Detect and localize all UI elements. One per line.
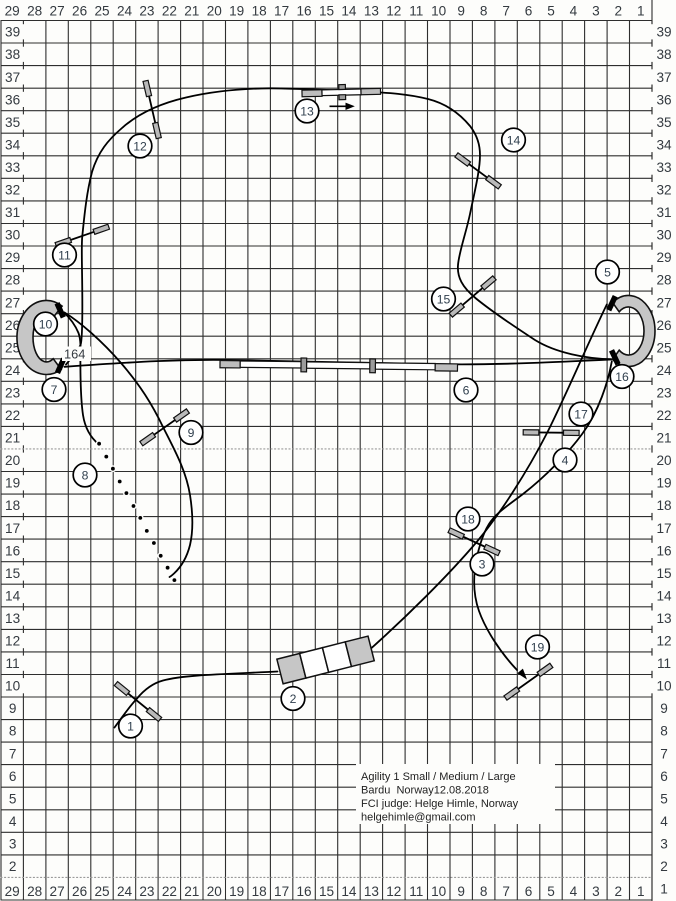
svg-text:34: 34 — [5, 137, 21, 152]
svg-text:13: 13 — [364, 4, 379, 19]
svg-text:FCI judge: Helge Himle, Norway: FCI judge: Helge Himle, Norway — [361, 798, 519, 810]
svg-text:27: 27 — [50, 4, 65, 19]
svg-text:10: 10 — [39, 317, 53, 331]
svg-text:22: 22 — [162, 4, 177, 19]
svg-text:18: 18 — [252, 884, 267, 899]
svg-text:5: 5 — [9, 791, 17, 806]
svg-text:33: 33 — [656, 160, 671, 175]
svg-text:33: 33 — [5, 160, 20, 175]
svg-text:4: 4 — [570, 884, 578, 899]
svg-text:10: 10 — [431, 884, 447, 899]
svg-text:23: 23 — [656, 386, 671, 401]
svg-text:10: 10 — [656, 679, 672, 694]
svg-text:17: 17 — [274, 884, 289, 899]
svg-text:28: 28 — [656, 273, 671, 288]
svg-text:6: 6 — [463, 383, 470, 397]
svg-text:12: 12 — [656, 634, 671, 649]
svg-text:6: 6 — [525, 4, 533, 19]
svg-text:25: 25 — [656, 340, 671, 355]
svg-text:11: 11 — [6, 656, 20, 671]
svg-text:13: 13 — [300, 104, 314, 118]
svg-text:25: 25 — [94, 4, 109, 19]
svg-text:20: 20 — [207, 884, 223, 899]
svg-text:16: 16 — [296, 4, 311, 19]
svg-text:34: 34 — [656, 137, 672, 152]
svg-text:19: 19 — [229, 4, 244, 19]
svg-text:9: 9 — [9, 701, 17, 716]
svg-text:30: 30 — [5, 228, 21, 243]
svg-text:18: 18 — [252, 4, 267, 19]
svg-text:8: 8 — [9, 724, 17, 739]
svg-text:5: 5 — [547, 884, 555, 899]
svg-text:10: 10 — [5, 679, 21, 694]
svg-text:16: 16 — [615, 370, 629, 384]
svg-text:17: 17 — [656, 521, 671, 536]
svg-text:26: 26 — [72, 884, 87, 899]
svg-text:15: 15 — [437, 292, 451, 306]
svg-text:19: 19 — [531, 640, 545, 654]
svg-text:1: 1 — [660, 882, 668, 897]
svg-text:27: 27 — [5, 295, 20, 310]
svg-text:13: 13 — [364, 884, 379, 899]
svg-text:3: 3 — [592, 884, 600, 899]
svg-text:1: 1 — [637, 884, 645, 899]
svg-text:24: 24 — [656, 363, 672, 378]
svg-text:14: 14 — [341, 4, 357, 19]
svg-text:8: 8 — [480, 884, 488, 899]
svg-text:31: 31 — [656, 205, 671, 220]
svg-text:11: 11 — [58, 248, 71, 262]
svg-text:17: 17 — [5, 521, 20, 536]
svg-text:38: 38 — [5, 47, 20, 62]
svg-text:29: 29 — [5, 4, 20, 19]
svg-text:31: 31 — [5, 205, 20, 220]
svg-text:23: 23 — [139, 884, 154, 899]
svg-text:39: 39 — [5, 25, 20, 40]
svg-text:32: 32 — [656, 183, 671, 198]
svg-text:28: 28 — [27, 4, 42, 19]
svg-text:12: 12 — [386, 4, 401, 19]
svg-text:14: 14 — [507, 133, 521, 147]
svg-text:2: 2 — [660, 859, 668, 874]
svg-text:4: 4 — [562, 453, 569, 467]
svg-text:14: 14 — [341, 884, 357, 899]
svg-text:14: 14 — [5, 588, 21, 603]
svg-text:29: 29 — [656, 250, 671, 265]
svg-text:29: 29 — [5, 250, 20, 265]
svg-text:12: 12 — [386, 884, 401, 899]
svg-text:9: 9 — [457, 4, 465, 19]
svg-text:15: 15 — [319, 884, 334, 899]
svg-text:7: 7 — [660, 746, 668, 761]
svg-text:11: 11 — [409, 4, 423, 19]
svg-text:27: 27 — [50, 884, 65, 899]
svg-text:6: 6 — [525, 884, 533, 899]
svg-text:32: 32 — [5, 183, 20, 198]
svg-text:29: 29 — [5, 884, 20, 899]
svg-text:28: 28 — [27, 884, 42, 899]
svg-text:3: 3 — [660, 837, 668, 852]
svg-text:36: 36 — [656, 92, 671, 107]
svg-text:2: 2 — [290, 692, 297, 706]
svg-text:7: 7 — [502, 4, 510, 19]
svg-text:164: 164 — [64, 346, 85, 361]
svg-text:26: 26 — [656, 318, 671, 333]
svg-text:3: 3 — [592, 4, 600, 19]
svg-text:16: 16 — [296, 884, 311, 899]
svg-text:19: 19 — [5, 476, 20, 491]
svg-text:7: 7 — [51, 383, 58, 397]
svg-text:25: 25 — [94, 884, 109, 899]
svg-text:39: 39 — [656, 25, 671, 40]
svg-text:30: 30 — [656, 228, 672, 243]
svg-text:9: 9 — [457, 884, 465, 899]
svg-text:20: 20 — [5, 453, 21, 468]
svg-text:18: 18 — [461, 512, 475, 526]
svg-text:26: 26 — [72, 4, 87, 19]
svg-text:15: 15 — [319, 4, 334, 19]
svg-text:19: 19 — [656, 476, 671, 491]
svg-text:2: 2 — [615, 884, 623, 899]
svg-text:21: 21 — [184, 884, 199, 899]
svg-text:36: 36 — [5, 92, 20, 107]
svg-text:4: 4 — [9, 814, 17, 829]
svg-text:4: 4 — [660, 814, 668, 829]
svg-text:8: 8 — [480, 4, 488, 19]
svg-text:16: 16 — [656, 543, 671, 558]
svg-text:helgehimle@gmail.com: helgehimle@gmail.com — [361, 812, 476, 824]
svg-text:12: 12 — [133, 139, 147, 153]
svg-text:2: 2 — [9, 859, 17, 874]
svg-text:Bardu Norway12.08.2018: Bardu Norway12.08.2018 — [361, 785, 489, 797]
svg-text:1: 1 — [127, 719, 134, 733]
svg-text:19: 19 — [229, 884, 244, 899]
svg-text:9: 9 — [660, 701, 668, 716]
svg-text:18: 18 — [656, 498, 671, 513]
svg-text:21: 21 — [656, 431, 671, 446]
svg-text:35: 35 — [5, 115, 20, 130]
svg-text:22: 22 — [656, 408, 671, 423]
svg-text:7: 7 — [9, 746, 17, 761]
svg-text:22: 22 — [5, 408, 20, 423]
svg-text:3: 3 — [479, 557, 486, 571]
svg-text:22: 22 — [162, 884, 177, 899]
svg-text:35: 35 — [656, 115, 671, 130]
svg-text:16: 16 — [5, 543, 20, 558]
svg-text:37: 37 — [5, 70, 20, 85]
svg-text:24: 24 — [5, 363, 21, 378]
svg-text:17: 17 — [574, 407, 588, 421]
svg-text:24: 24 — [117, 4, 133, 19]
svg-text:28: 28 — [5, 273, 20, 288]
svg-text:13: 13 — [656, 611, 671, 626]
svg-text:21: 21 — [184, 4, 199, 19]
svg-text:10: 10 — [431, 4, 447, 19]
svg-text:4: 4 — [570, 4, 578, 19]
svg-text:6: 6 — [660, 769, 668, 784]
svg-text:8: 8 — [82, 468, 89, 482]
svg-text:27: 27 — [656, 295, 671, 310]
svg-text:37: 37 — [656, 70, 671, 85]
svg-text:13: 13 — [5, 611, 20, 626]
svg-text:17: 17 — [274, 4, 289, 19]
svg-text:8: 8 — [660, 724, 668, 739]
svg-text:15: 15 — [656, 566, 671, 581]
svg-text:2: 2 — [615, 4, 623, 19]
svg-text:23: 23 — [139, 4, 154, 19]
svg-text:1: 1 — [637, 4, 645, 19]
svg-text:14: 14 — [656, 588, 672, 603]
svg-text:15: 15 — [5, 566, 20, 581]
svg-text:20: 20 — [207, 4, 223, 19]
svg-text:5: 5 — [547, 4, 555, 19]
svg-text:24: 24 — [117, 884, 133, 899]
svg-text:20: 20 — [656, 453, 672, 468]
svg-text:5: 5 — [660, 791, 668, 806]
svg-text:6: 6 — [9, 769, 17, 784]
svg-text:11: 11 — [409, 884, 423, 899]
svg-text:21: 21 — [5, 431, 20, 446]
svg-text:5: 5 — [604, 265, 611, 279]
svg-text:3: 3 — [9, 837, 17, 852]
svg-text:18: 18 — [5, 498, 20, 513]
svg-text:23: 23 — [5, 386, 20, 401]
svg-text:Agility 1 Small / Medium / Lar: Agility 1 Small / Medium / Large — [361, 771, 516, 783]
svg-text:7: 7 — [502, 884, 510, 899]
svg-text:12: 12 — [5, 634, 20, 649]
svg-text:9: 9 — [188, 426, 195, 440]
svg-text:38: 38 — [656, 47, 671, 62]
svg-text:11: 11 — [657, 656, 671, 671]
